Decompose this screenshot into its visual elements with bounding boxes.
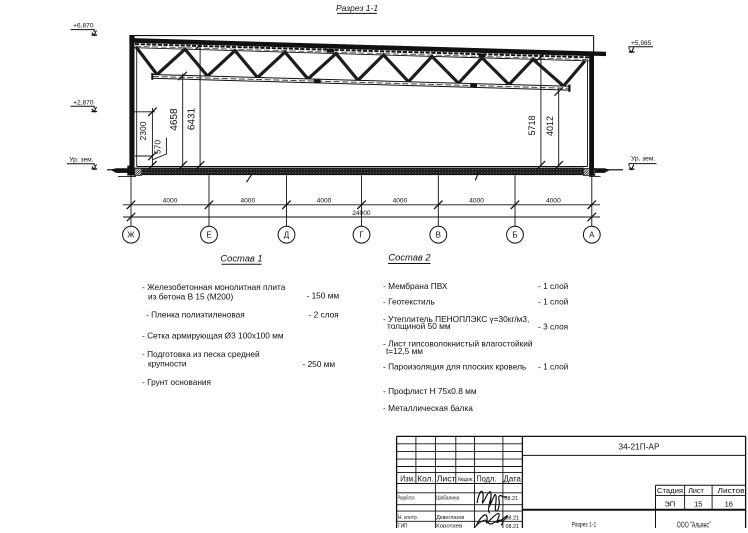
svg-text:Г: Г — [359, 231, 364, 240]
svg-text:Е: Е — [206, 231, 211, 240]
svg-text:4000: 4000 — [393, 198, 408, 205]
svg-text:5718: 5718 — [527, 115, 537, 135]
svg-text:4000: 4000 — [546, 198, 561, 205]
svg-text:- Геотекстиль: - Геотекстиль — [383, 297, 435, 307]
svg-text:4658: 4658 — [169, 108, 180, 131]
svg-text:Разрез 1-1: Разрез 1-1 — [336, 3, 378, 13]
svg-text:№док.: №док. — [458, 477, 474, 483]
svg-text:Лист: Лист — [437, 474, 456, 483]
svg-text:4000: 4000 — [240, 198, 255, 205]
svg-text:Кол.: Кол. — [417, 474, 434, 483]
svg-text:- 1 слой: - 1 слой — [538, 281, 569, 291]
svg-text:ЭП: ЭП — [664, 499, 675, 508]
svg-text:24000: 24000 — [352, 210, 371, 217]
svg-text:6431: 6431 — [186, 107, 197, 130]
svg-text:- Сетка армирующая Ø3 100х100: - Сетка армирующая Ø3 100х100 мм — [142, 331, 284, 341]
svg-text:ООО "Альянс": ООО "Альянс" — [677, 521, 711, 529]
svg-text:ГИП: ГИП — [398, 523, 408, 528]
svg-text:В: В — [436, 231, 441, 240]
svg-text:Изм.: Изм. — [400, 474, 415, 483]
svg-text:t=12,5 мм: t=12,5 мм — [386, 346, 423, 356]
svg-text:- 250 мм: - 250 мм — [303, 359, 336, 369]
svg-text:+2,870: +2,870 — [73, 99, 94, 106]
svg-text:А: А — [589, 231, 595, 240]
svg-text:15: 15 — [694, 499, 702, 508]
svg-text:4012: 4012 — [545, 116, 555, 136]
svg-text:Шабалина: Шабалина — [436, 495, 459, 501]
svg-text:Ур. зем.: Ур. зем. — [69, 157, 93, 164]
svg-text:- Грунт основания: - Грунт основания — [142, 377, 211, 387]
svg-text:Стадия: Стадия — [657, 486, 683, 495]
svg-text:+6,870: +6,870 — [73, 23, 94, 30]
svg-text:4000: 4000 — [317, 198, 332, 205]
svg-text:Лист: Лист — [688, 486, 704, 495]
svg-text:Коротаев: Коротаев — [436, 523, 462, 528]
svg-text:570: 570 — [153, 140, 163, 154]
svg-text:4000: 4000 — [163, 198, 178, 205]
svg-text:- 1 слой: - 1 слой — [538, 362, 569, 372]
svg-text:- Железобетонная монолитная п: - Железобетонная монолитная плита — [142, 282, 286, 292]
svg-text:34-21П-АР: 34-21П-АР — [618, 441, 659, 451]
svg-text:Б: Б — [512, 231, 517, 240]
svg-text:- Пленка полиэтиленовая: - Пленка полиэтиленовая — [146, 310, 245, 320]
svg-text:08.21: 08.21 — [506, 524, 520, 528]
svg-text:Н. контр.: Н. контр. — [398, 515, 418, 521]
svg-text:- Пароизоляция для плоских кро: - Пароизоляция для плоских кровель — [383, 362, 526, 372]
svg-text:Д: Д — [284, 231, 290, 240]
svg-text:- 2 слоя: - 2 слоя — [309, 310, 339, 320]
svg-text:Разрез 1-1: Разрез 1-1 — [572, 521, 597, 528]
svg-text:- 3 слоя: - 3 слоя — [538, 322, 568, 332]
svg-text:Дата: Дата — [504, 474, 522, 483]
svg-text:из бетона В 15 (М200): из бетона В 15 (М200) — [148, 292, 233, 302]
svg-text:Ж: Ж — [127, 231, 135, 240]
svg-text:- Профлист Н 75х0.8 мм: - Профлист Н 75х0.8 мм — [383, 386, 477, 396]
svg-text:+5,985: +5,985 — [631, 40, 652, 47]
svg-text:Листов: Листов — [718, 486, 745, 495]
svg-text:крупности: крупности — [148, 358, 187, 368]
svg-text:толщиной 50 мм: толщиной 50 мм — [387, 321, 451, 331]
svg-text:- Мембрана ПВХ: - Мембрана ПВХ — [383, 281, 448, 291]
svg-text:Состав 1: Состав 1 — [220, 253, 262, 264]
svg-text:4000: 4000 — [469, 198, 484, 205]
svg-text:2300: 2300 — [138, 121, 148, 140]
svg-text:Состав 2: Состав 2 — [388, 252, 431, 263]
svg-text:- Металлическая балка: - Металлическая балка — [383, 403, 473, 413]
svg-text:Ур. зем.: Ур. зем. — [631, 156, 655, 163]
svg-text:- 150 мм: - 150 мм — [307, 291, 340, 301]
svg-text:- 1 слой: - 1 слой — [538, 297, 569, 307]
svg-text:16: 16 — [725, 499, 733, 508]
svg-text:Разработал: Разработал — [398, 495, 415, 501]
svg-text:Подл.: Подл. — [476, 474, 496, 483]
svg-text:Девеглазов: Девеглазов — [436, 515, 464, 521]
